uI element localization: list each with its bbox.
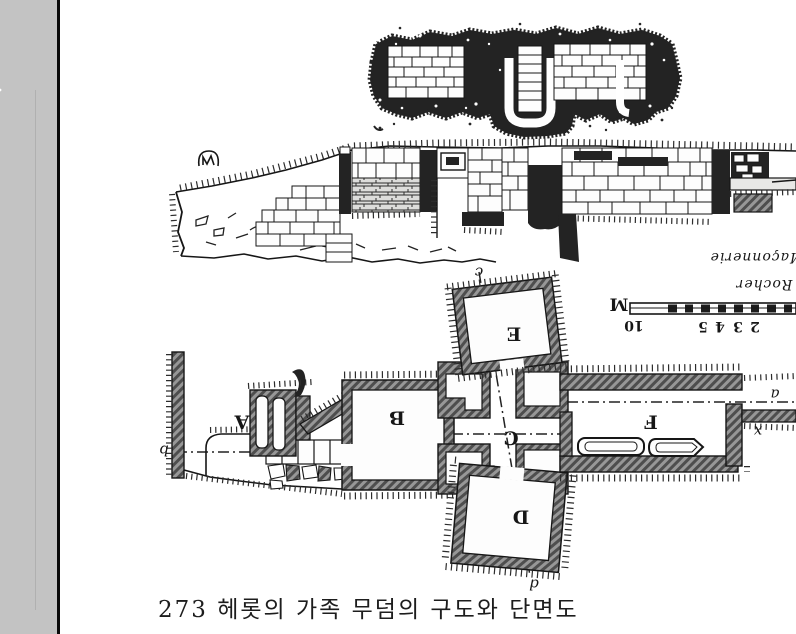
room-label-f: F	[644, 412, 658, 431]
scale-number-5: 5	[698, 319, 708, 333]
lintel-stone-1	[574, 151, 612, 160]
scale-number-3: 3	[733, 319, 743, 333]
room-label-d: D	[513, 507, 529, 526]
note-masonry: Maçonnerie	[710, 250, 796, 264]
section-marker-a: a	[771, 387, 780, 402]
scale-bar	[630, 303, 796, 314]
room-label-a: A	[235, 412, 250, 431]
top-section-drawing	[0, 23, 680, 137]
scale-unit-label: M	[610, 295, 629, 312]
arch-mark	[199, 151, 219, 166]
tomb-figure-drawing	[0, 0, 796, 634]
sarcophagi	[578, 438, 703, 456]
scale-number-10: 10	[624, 318, 643, 332]
section-marker-c: c	[475, 265, 483, 280]
elevation-drawing	[172, 142, 796, 263]
room-d-walls	[445, 460, 574, 577]
room-label-b: B	[389, 408, 405, 427]
scanned-book-page: A B C D E F b c d a x Maçonnerie Rocher …	[0, 0, 796, 634]
rubble-stones	[268, 464, 345, 489]
brick-panel-left	[388, 46, 464, 98]
note-rock: Rocher	[736, 277, 793, 291]
dark-doorway	[528, 165, 562, 229]
rubble-patch	[731, 152, 769, 180]
lintel-stone-2	[618, 157, 668, 166]
scale-number-4: 4	[715, 319, 725, 333]
room-label-c: C	[503, 428, 518, 447]
brick-column	[518, 46, 542, 112]
ashlar-pier-right	[468, 148, 502, 212]
stepped-masonry	[256, 186, 352, 262]
rock-pillar	[558, 214, 579, 262]
scale-number-2: 2	[750, 319, 760, 333]
brick-panel-right	[554, 44, 646, 100]
figure-caption: 273 헤롯의 가족 무덤의 구도와 단면도	[158, 590, 579, 624]
section-marker-b: b	[159, 443, 169, 458]
ashlar-wall-left	[352, 148, 420, 178]
find-marker-x: x	[754, 424, 762, 439]
rock-edge-ticks	[172, 194, 176, 252]
room-label-e: E	[507, 324, 521, 343]
